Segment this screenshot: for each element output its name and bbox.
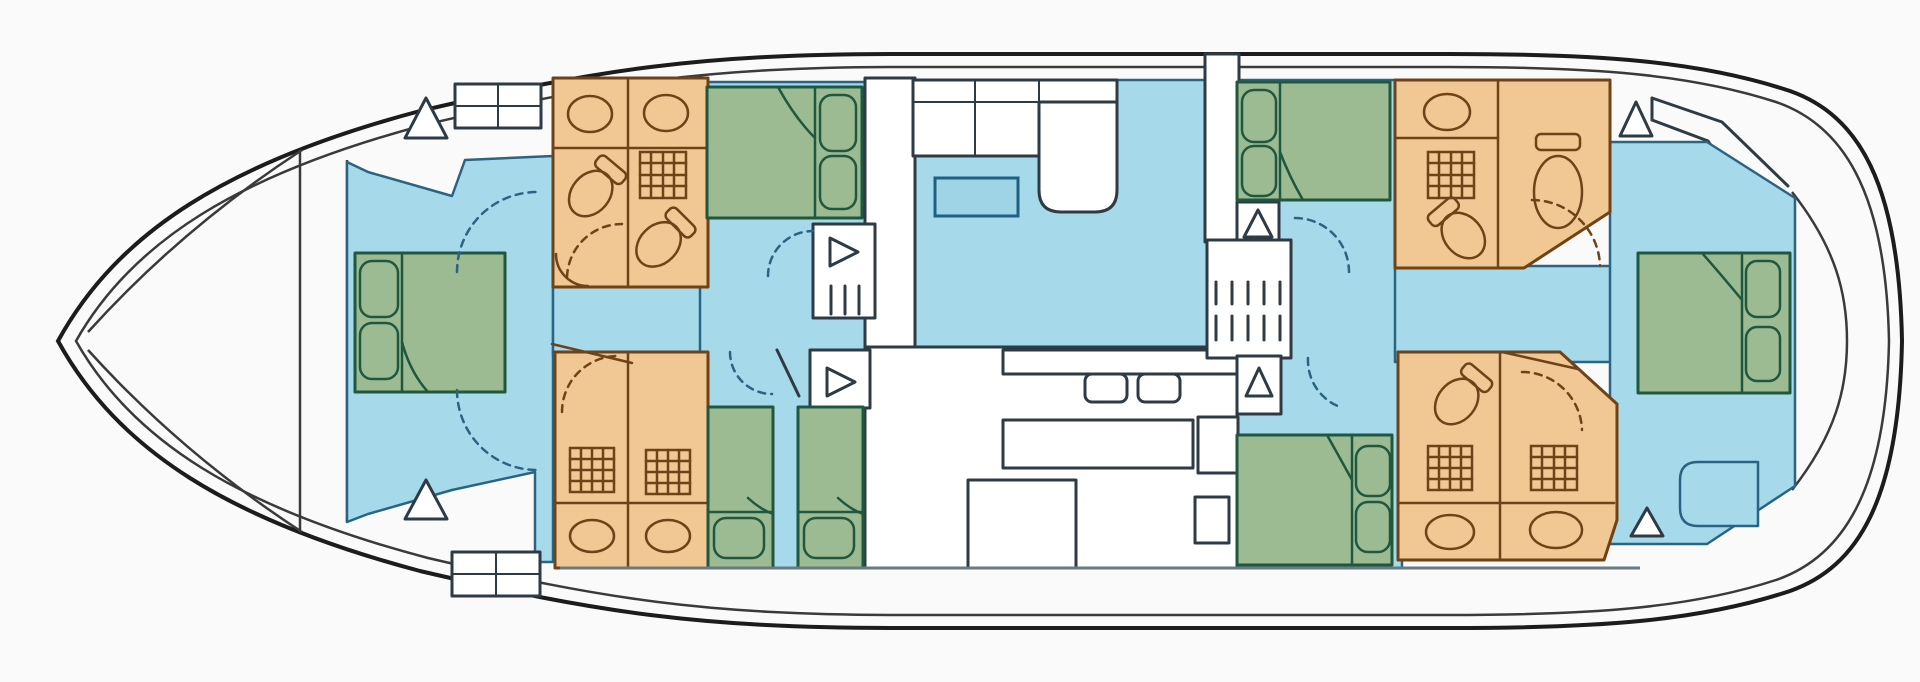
galley-companionway bbox=[1237, 356, 1281, 414]
forward-upper-companionway bbox=[813, 224, 875, 318]
dinette-table bbox=[935, 178, 1018, 216]
aft-lower-cabin-bed bbox=[1237, 435, 1392, 565]
galley-sink-2 bbox=[1138, 374, 1180, 402]
bow-bottom-deck-panel bbox=[452, 552, 540, 596]
galley-island bbox=[1003, 420, 1193, 468]
forward-upper-cabin-bed bbox=[707, 87, 862, 218]
hatch-triangle-icon bbox=[405, 98, 447, 138]
settee-corner-seat bbox=[1039, 102, 1117, 212]
forward-lower-bathroom bbox=[552, 344, 708, 568]
galley-cabinet-left bbox=[968, 480, 1076, 568]
aft-upper-cabin-bed bbox=[1237, 82, 1390, 200]
aft-upper-bathroom bbox=[1395, 80, 1610, 268]
galley-counter bbox=[1003, 350, 1237, 374]
hatch-triangle-icon bbox=[1620, 102, 1652, 136]
aft-wall-column bbox=[1205, 54, 1239, 242]
bow-top-deck-panel bbox=[455, 84, 541, 128]
aft-lower-bathroom bbox=[1398, 352, 1617, 560]
galley-sink-1 bbox=[1085, 374, 1127, 402]
galley-cabinet-right-1 bbox=[1198, 417, 1238, 473]
boat-floor-plan-screenshot bbox=[0, 0, 1920, 682]
stern-bench bbox=[1680, 462, 1758, 526]
forward-upper-bathroom bbox=[553, 78, 708, 287]
bow-cabin-bed bbox=[355, 253, 505, 392]
boat-floor-plan bbox=[0, 0, 1920, 682]
forward-corridor-floor bbox=[553, 285, 713, 355]
galley-cabinet-right-2 bbox=[1195, 497, 1229, 543]
stern-cabin-bed bbox=[1638, 253, 1790, 393]
stern-inner-curve bbox=[1792, 192, 1847, 490]
galley bbox=[865, 347, 1238, 568]
forward-lower-companionway bbox=[810, 350, 870, 408]
